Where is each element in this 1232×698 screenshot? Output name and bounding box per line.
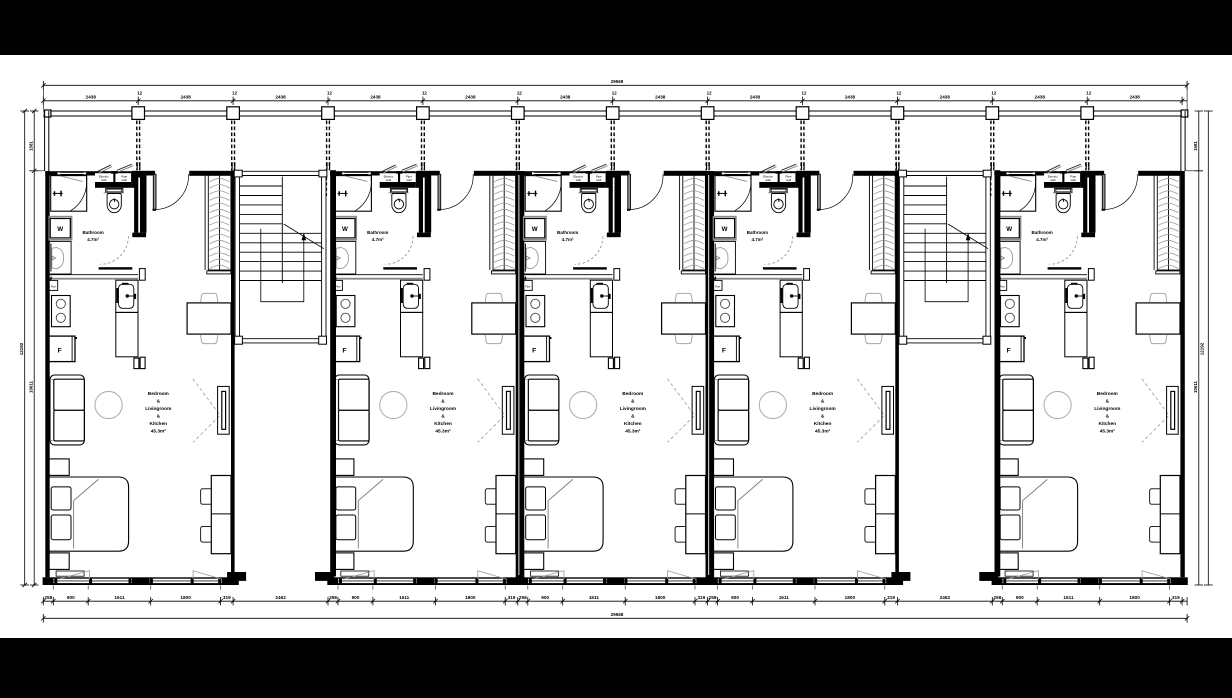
svg-text:Bedroom: Bedroom (148, 391, 169, 397)
svg-text:45.3m²: 45.3m² (625, 429, 641, 435)
svg-text:wall: wall (1071, 178, 1077, 182)
svg-text:Flue: Flue (715, 284, 721, 288)
svg-text:Bathroom: Bathroom (747, 230, 768, 235)
svg-text:Livingroom: Livingroom (430, 406, 456, 412)
svg-text:2438: 2438 (845, 95, 856, 100)
svg-text:10611: 10611 (1193, 380, 1198, 393)
svg-text:900: 900 (352, 595, 360, 600)
svg-text:wall: wall (101, 178, 107, 182)
svg-text:wall: wall (576, 178, 582, 182)
svg-text:Kitchen: Kitchen (624, 421, 642, 427)
svg-text:2438: 2438 (86, 95, 97, 100)
svg-text:Livingroom: Livingroom (620, 406, 646, 412)
svg-text:258: 258 (519, 595, 527, 600)
svg-text:12: 12 (707, 91, 712, 96)
svg-text:&: & (821, 398, 825, 404)
svg-text:45.3m²: 45.3m² (1100, 429, 1116, 435)
svg-text:Flue: Flue (335, 284, 341, 288)
svg-text:12192: 12192 (1200, 342, 1205, 355)
svg-text:319: 319 (223, 595, 231, 600)
svg-text:wall: wall (122, 178, 128, 182)
svg-text:F: F (1007, 348, 1011, 355)
svg-text:W: W (722, 226, 728, 233)
svg-text:4.7m²: 4.7m² (1036, 237, 1048, 242)
svg-text:900: 900 (1016, 595, 1024, 600)
svg-text:45.3m²: 45.3m² (435, 429, 451, 435)
svg-text:319: 319 (1172, 595, 1180, 600)
svg-text:F: F (722, 348, 726, 355)
svg-text:Flue: Flue (51, 284, 57, 288)
svg-text:1581: 1581 (1193, 141, 1198, 151)
svg-text:Livingroom: Livingroom (145, 406, 171, 412)
svg-text:Kitchen: Kitchen (150, 421, 168, 427)
svg-text:2438: 2438 (1035, 95, 1046, 100)
svg-text:1800: 1800 (465, 595, 476, 600)
svg-text:1611: 1611 (589, 595, 600, 600)
svg-text:Kitchen: Kitchen (1099, 421, 1117, 427)
svg-text:1800: 1800 (655, 595, 666, 600)
svg-text:2462: 2462 (940, 595, 951, 600)
svg-text:12: 12 (137, 91, 142, 96)
svg-text:wall: wall (1050, 178, 1056, 182)
svg-text:4.7m²: 4.7m² (372, 237, 384, 242)
svg-text:1611: 1611 (779, 595, 790, 600)
svg-text:10611: 10611 (28, 380, 33, 393)
svg-text:Bedroom: Bedroom (432, 391, 453, 397)
svg-text:F: F (532, 348, 536, 355)
svg-text:900: 900 (67, 595, 75, 600)
svg-text:wall: wall (766, 178, 772, 182)
svg-text:1800: 1800 (1129, 595, 1140, 600)
svg-text:45.3m²: 45.3m² (815, 429, 831, 435)
svg-text:2438: 2438 (940, 95, 951, 100)
svg-text:W: W (1006, 226, 1012, 233)
svg-text:wall: wall (786, 178, 792, 182)
svg-text:F: F (342, 348, 346, 355)
svg-text:258: 258 (709, 595, 717, 600)
svg-text:F: F (58, 348, 62, 355)
svg-text:12: 12 (422, 91, 427, 96)
svg-text:&: & (441, 414, 445, 420)
svg-text:12: 12 (517, 91, 522, 96)
svg-text:Flue: Flue (1000, 284, 1006, 288)
svg-text:&: & (157, 414, 161, 420)
svg-text:2438: 2438 (750, 95, 761, 100)
svg-text:W: W (532, 226, 538, 233)
svg-text:29568: 29568 (611, 79, 624, 84)
svg-text:4.7m²: 4.7m² (87, 237, 99, 242)
svg-text:2462: 2462 (275, 595, 286, 600)
svg-text:Bathroom: Bathroom (367, 230, 388, 235)
svg-text:4.7m²: 4.7m² (562, 237, 574, 242)
svg-text:&: & (1106, 398, 1110, 404)
svg-text:Bathroom: Bathroom (1031, 230, 1052, 235)
svg-text:29568: 29568 (611, 612, 624, 617)
svg-text:258: 258 (44, 595, 52, 600)
svg-text:45.3m²: 45.3m² (151, 429, 167, 435)
svg-text:&: & (1106, 414, 1110, 420)
svg-text:2438: 2438 (370, 95, 381, 100)
svg-text:2438: 2438 (655, 95, 666, 100)
svg-text:&: & (441, 398, 445, 404)
svg-text:2438: 2438 (465, 95, 476, 100)
svg-text:2438: 2438 (560, 95, 571, 100)
svg-text:Bedroom: Bedroom (812, 391, 833, 397)
svg-text:W: W (57, 226, 63, 233)
svg-text:Bedroom: Bedroom (622, 391, 643, 397)
svg-text:Livingroom: Livingroom (1094, 406, 1120, 412)
svg-text:12: 12 (896, 91, 901, 96)
svg-text:Flue: Flue (525, 284, 531, 288)
svg-text:4.7m²: 4.7m² (752, 237, 764, 242)
svg-text:2438: 2438 (181, 95, 192, 100)
svg-text:&: & (821, 414, 825, 420)
svg-text:319: 319 (887, 595, 895, 600)
svg-text:Bathroom: Bathroom (557, 230, 578, 235)
svg-text:12: 12 (802, 91, 807, 96)
svg-text:900: 900 (541, 595, 549, 600)
svg-text:258: 258 (993, 595, 1001, 600)
svg-text:Bedroom: Bedroom (1097, 391, 1118, 397)
svg-text:Bathroom: Bathroom (82, 230, 103, 235)
svg-text:2438: 2438 (1130, 95, 1141, 100)
svg-text:12: 12 (1086, 91, 1091, 96)
svg-text:wall: wall (406, 178, 412, 182)
svg-text:Kitchen: Kitchen (434, 421, 452, 427)
svg-text:1581: 1581 (28, 141, 33, 151)
svg-text:1800: 1800 (845, 595, 856, 600)
svg-text:&: & (631, 398, 635, 404)
svg-text:1611: 1611 (1063, 595, 1074, 600)
svg-text:W: W (342, 226, 348, 233)
svg-text:12: 12 (232, 91, 237, 96)
svg-text:wall: wall (386, 178, 392, 182)
svg-text:12: 12 (612, 91, 617, 96)
svg-text:1611: 1611 (114, 595, 125, 600)
svg-text:Livingroom: Livingroom (810, 406, 836, 412)
svg-text:258: 258 (329, 595, 337, 600)
svg-text:12192: 12192 (19, 342, 24, 355)
svg-text:&: & (157, 398, 161, 404)
svg-text:2438: 2438 (275, 95, 286, 100)
svg-text:12: 12 (327, 91, 332, 96)
svg-text:Kitchen: Kitchen (814, 421, 832, 427)
svg-text:wall: wall (596, 178, 602, 182)
svg-text:900: 900 (731, 595, 739, 600)
svg-text:&: & (631, 414, 635, 420)
svg-text:319: 319 (508, 595, 516, 600)
svg-text:12: 12 (991, 91, 996, 96)
svg-text:319: 319 (697, 595, 705, 600)
svg-text:1611: 1611 (399, 595, 410, 600)
svg-text:1800: 1800 (180, 595, 191, 600)
